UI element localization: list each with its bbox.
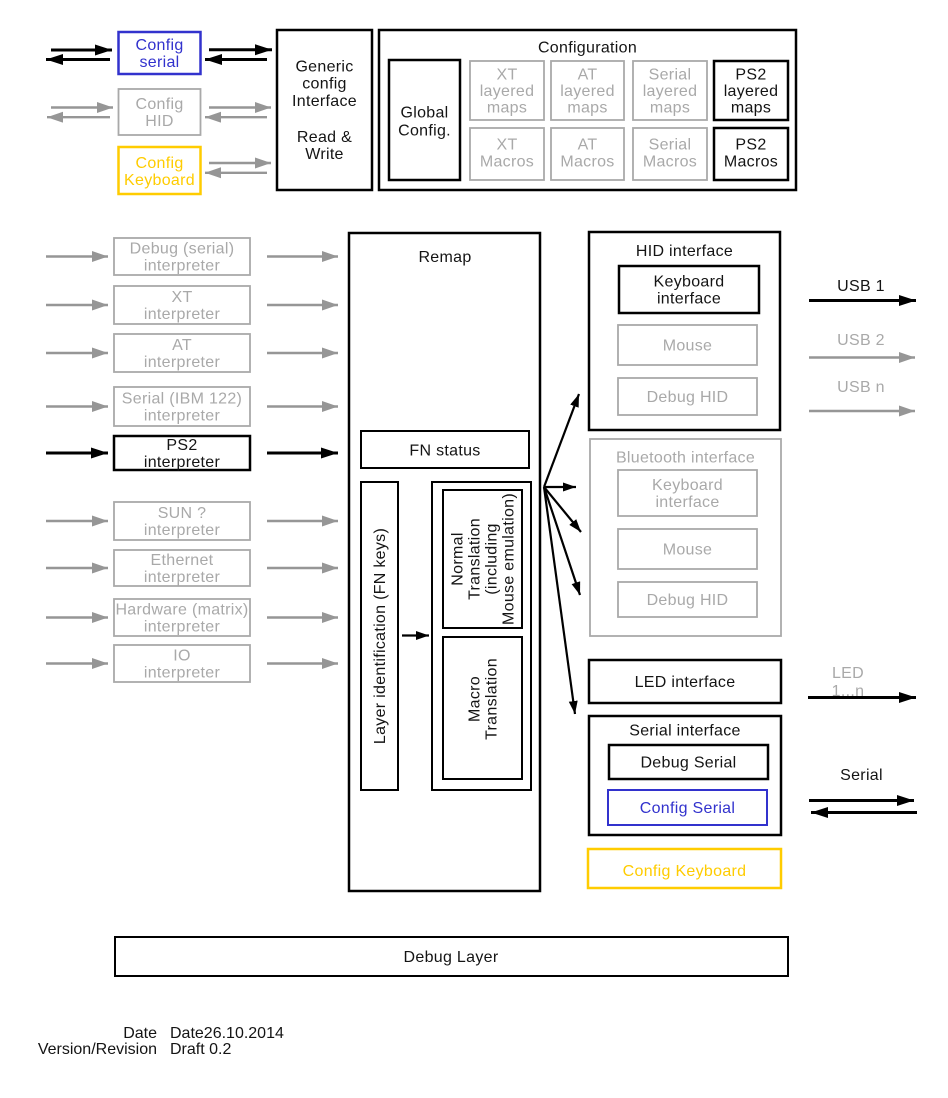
svg-text:IO: IO — [173, 648, 191, 665]
svg-text:Translation: Translation — [467, 518, 484, 600]
svg-text:Write: Write — [305, 146, 344, 163]
svg-text:interface: interface — [657, 291, 721, 308]
svg-text:Configuration: Configuration — [538, 40, 637, 57]
svg-text:maps: maps — [731, 100, 771, 117]
svg-text:Debug HID: Debug HID — [647, 592, 729, 609]
svg-text:LED interface: LED interface — [635, 674, 736, 691]
svg-text:SUN ?: SUN ? — [158, 505, 207, 522]
svg-text:serial: serial — [139, 54, 179, 71]
svg-text:layered: layered — [480, 83, 535, 100]
svg-text:Layer identification (FN keys): Layer identification (FN keys) — [372, 528, 389, 744]
svg-text:Date26.10.2014: Date26.10.2014 — [170, 1025, 284, 1042]
svg-text:Debug HID: Debug HID — [647, 389, 729, 406]
svg-text:interpreter: interpreter — [144, 354, 221, 371]
svg-text:USB n: USB n — [837, 379, 885, 396]
svg-text:Serial: Serial — [649, 67, 692, 84]
svg-text:maps: maps — [567, 100, 607, 117]
svg-text:FN status: FN status — [409, 443, 480, 460]
svg-text:interpreter: interpreter — [144, 454, 221, 471]
svg-text:interpreter: interpreter — [144, 665, 221, 682]
svg-text:Macros: Macros — [643, 154, 697, 171]
svg-text:HID interface: HID interface — [636, 243, 733, 260]
svg-text:Keyboard: Keyboard — [654, 274, 725, 291]
svg-text:Keyboard: Keyboard — [652, 477, 723, 494]
svg-text:HID: HID — [145, 113, 173, 130]
svg-text:Keyboard: Keyboard — [124, 172, 195, 189]
svg-text:PS2: PS2 — [735, 137, 766, 154]
svg-text:XT: XT — [496, 67, 517, 84]
svg-text:Macro: Macro — [467, 676, 484, 722]
svg-text:Debug Serial: Debug Serial — [640, 755, 736, 772]
svg-text:AT: AT — [578, 137, 598, 154]
svg-text:Translation: Translation — [484, 658, 501, 740]
svg-text:Serial interface: Serial interface — [629, 723, 741, 740]
svg-text:layered: layered — [724, 83, 779, 100]
svg-text:Macros: Macros — [560, 154, 614, 171]
svg-text:Config: Config — [135, 155, 183, 172]
svg-text:layered: layered — [643, 83, 698, 100]
svg-text:maps: maps — [650, 100, 690, 117]
svg-text:Mouse emulation): Mouse emulation) — [501, 493, 518, 625]
svg-text:config: config — [302, 76, 347, 93]
svg-text:Bluetooth interface: Bluetooth interface — [616, 450, 755, 467]
svg-text:PS2: PS2 — [735, 67, 766, 84]
svg-text:XT: XT — [171, 289, 192, 306]
svg-text:Normal: Normal — [450, 532, 467, 585]
svg-text:interface: interface — [655, 494, 719, 511]
svg-text:layered: layered — [560, 83, 615, 100]
svg-text:Read &: Read & — [297, 129, 352, 146]
svg-text:PS2: PS2 — [166, 437, 197, 454]
svg-text:Config Keyboard: Config Keyboard — [623, 863, 747, 880]
svg-text:Config: Config — [135, 37, 183, 54]
svg-text:Debug Layer: Debug Layer — [404, 949, 499, 966]
svg-text:Hardware (matrix): Hardware (matrix) — [115, 602, 248, 619]
svg-text:Debug (serial): Debug (serial) — [130, 241, 235, 258]
svg-text:Version/Revision: Version/Revision — [38, 1041, 157, 1058]
svg-text:Date: Date — [123, 1025, 157, 1042]
svg-text:Config.: Config. — [398, 123, 451, 140]
svg-text:Draft 0.2: Draft 0.2 — [170, 1041, 231, 1058]
svg-text:AT: AT — [578, 67, 598, 84]
svg-text:XT: XT — [496, 137, 517, 154]
svg-text:LED: LED — [832, 665, 864, 682]
svg-text:Serial (IBM 122): Serial (IBM 122) — [122, 391, 242, 408]
svg-text:interpreter: interpreter — [144, 522, 221, 539]
svg-text:(including: (including — [484, 523, 501, 594]
svg-text:Ethernet: Ethernet — [151, 552, 214, 569]
svg-text:Config Serial: Config Serial — [640, 800, 736, 817]
svg-text:Mouse: Mouse — [663, 338, 713, 355]
svg-text:Serial: Serial — [840, 767, 883, 784]
svg-text:interpreter: interpreter — [144, 619, 221, 636]
svg-text:AT: AT — [172, 337, 192, 354]
svg-text:Config: Config — [135, 96, 183, 113]
svg-text:maps: maps — [487, 100, 527, 117]
svg-text:interpreter: interpreter — [144, 306, 221, 323]
svg-text:interpreter: interpreter — [144, 569, 221, 586]
svg-text:Macros: Macros — [724, 154, 778, 171]
svg-text:Macros: Macros — [480, 154, 534, 171]
svg-text:Global: Global — [400, 105, 448, 122]
svg-text:interpreter: interpreter — [144, 408, 221, 425]
svg-text:Mouse: Mouse — [663, 542, 713, 559]
svg-text:Interface: Interface — [292, 93, 357, 110]
svg-text:Remap: Remap — [418, 249, 471, 266]
svg-text:Generic: Generic — [295, 59, 353, 76]
svg-text:interpreter: interpreter — [144, 258, 221, 275]
svg-text:USB 1: USB 1 — [837, 278, 885, 295]
svg-text:USB 2: USB 2 — [837, 332, 885, 349]
svg-text:Serial: Serial — [649, 137, 692, 154]
